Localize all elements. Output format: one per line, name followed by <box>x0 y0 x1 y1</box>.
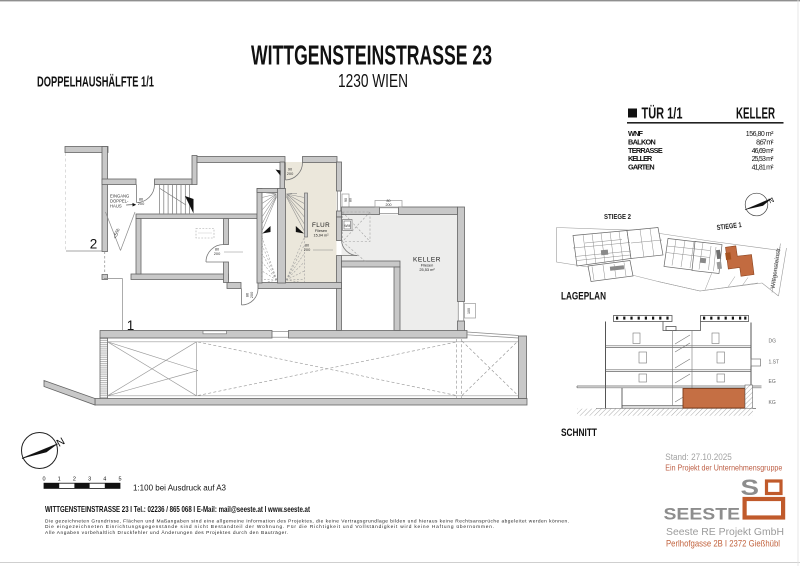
svg-text:1230 WIEN: 1230 WIEN <box>338 70 408 91</box>
svg-text:TÜR 1/1: TÜR 1/1 <box>642 106 683 123</box>
svg-text:80: 80 <box>348 198 352 202</box>
svg-text:0: 0 <box>42 477 45 483</box>
svg-text:5: 5 <box>118 477 121 483</box>
svg-text:1: 1 <box>58 477 61 483</box>
svg-text:200: 200 <box>214 251 221 256</box>
svg-text:SCHNITT: SCHNITT <box>561 427 597 439</box>
svg-text:100: 100 <box>467 308 471 314</box>
svg-text:<5%: <5% <box>112 227 121 239</box>
svg-text:Alle Angaben vorbehaltlich Dru: Alle Angaben vorbehaltlich Druckfehler u… <box>45 529 288 536</box>
svg-text:Perlhofgasse 2B I 2372 Gießhüb: Perlhofgasse 2B I 2372 Gießhübl <box>666 539 780 549</box>
svg-text:WM: WM <box>344 224 350 228</box>
svg-text:200: 200 <box>138 201 145 206</box>
svg-text:25,53 m²: 25,53 m² <box>419 267 435 272</box>
svg-text:Stand: 27.10.2025: Stand: 27.10.2025 <box>665 452 732 462</box>
svg-text:DOPPELHAUSHÄLFTE 1/1: DOPPELHAUSHÄLFTE 1/1 <box>37 74 154 91</box>
svg-text:SEESTE: SEESTE <box>664 505 741 524</box>
svg-text:DG: DG <box>769 339 777 345</box>
svg-text:1: 1 <box>127 318 135 333</box>
svg-text:EG: EG <box>769 379 776 385</box>
svg-text:200: 200 <box>287 171 294 176</box>
svg-text:15,94 m²: 15,94 m² <box>314 234 330 238</box>
svg-text:200: 200 <box>249 291 254 298</box>
svg-text:GARTEN: GARTEN <box>628 163 655 172</box>
svg-text:1:100 bei Ausdruck auf A3: 1:100 bei Ausdruck auf A3 <box>133 483 226 493</box>
svg-text:4: 4 <box>103 477 106 483</box>
svg-text:LAGEPLAN: LAGEPLAN <box>561 291 606 303</box>
svg-text:KG: KG <box>769 400 776 406</box>
svg-text:25,53 m²: 25,53 m² <box>752 156 775 163</box>
svg-text:WITTGENSTEINSTRASSE 23 I Tel.:: WITTGENSTEINSTRASSE 23 I Tel.: 02236 / 8… <box>45 505 310 514</box>
svg-text:Die gezeichneten Grundrisse, F: Die gezeichneten Grundrisse, Flächen und… <box>45 518 569 524</box>
svg-text:200: 200 <box>386 203 392 207</box>
svg-text:200: 200 <box>304 247 311 252</box>
svg-text:FLUR: FLUR <box>312 222 330 229</box>
svg-text:STIEGE 1: STIEGE 1 <box>716 220 742 232</box>
svg-text:STIEGE 2: STIEGE 2 <box>604 212 631 221</box>
svg-text:N: N <box>768 197 776 205</box>
svg-text:46,69 m²: 46,69 m² <box>752 148 775 155</box>
svg-text:1.ST: 1.ST <box>769 360 780 366</box>
svg-text:3: 3 <box>88 477 91 483</box>
svg-text:2: 2 <box>90 237 98 252</box>
svg-text:8,67 m²: 8,67 m² <box>756 139 774 146</box>
svg-text:Ein Projekt der Unternehmensgr: Ein Projekt der Unternehmensgruppe <box>665 463 782 473</box>
svg-text:156,80 m²: 156,80 m² <box>746 131 774 138</box>
svg-text:KELLER: KELLER <box>736 106 775 123</box>
svg-text:HAUS: HAUS <box>110 204 122 209</box>
svg-text:Seeste RE Projekt GmbH: Seeste RE Projekt GmbH <box>666 527 784 538</box>
svg-text:WITTGENSTEINSTRASSE 23: WITTGENSTEINSTRASSE 23 <box>251 40 492 71</box>
svg-text:Fliesen: Fliesen <box>315 229 327 233</box>
svg-text:2: 2 <box>73 477 76 483</box>
svg-text:S: S <box>741 475 760 500</box>
svg-text:N: N <box>55 435 68 449</box>
svg-text:41,81 m²: 41,81 m² <box>752 165 775 172</box>
svg-text:Die eingezeichneten Einrichtun: Die eingezeichneten Einrichtungsgegenstä… <box>45 524 494 530</box>
